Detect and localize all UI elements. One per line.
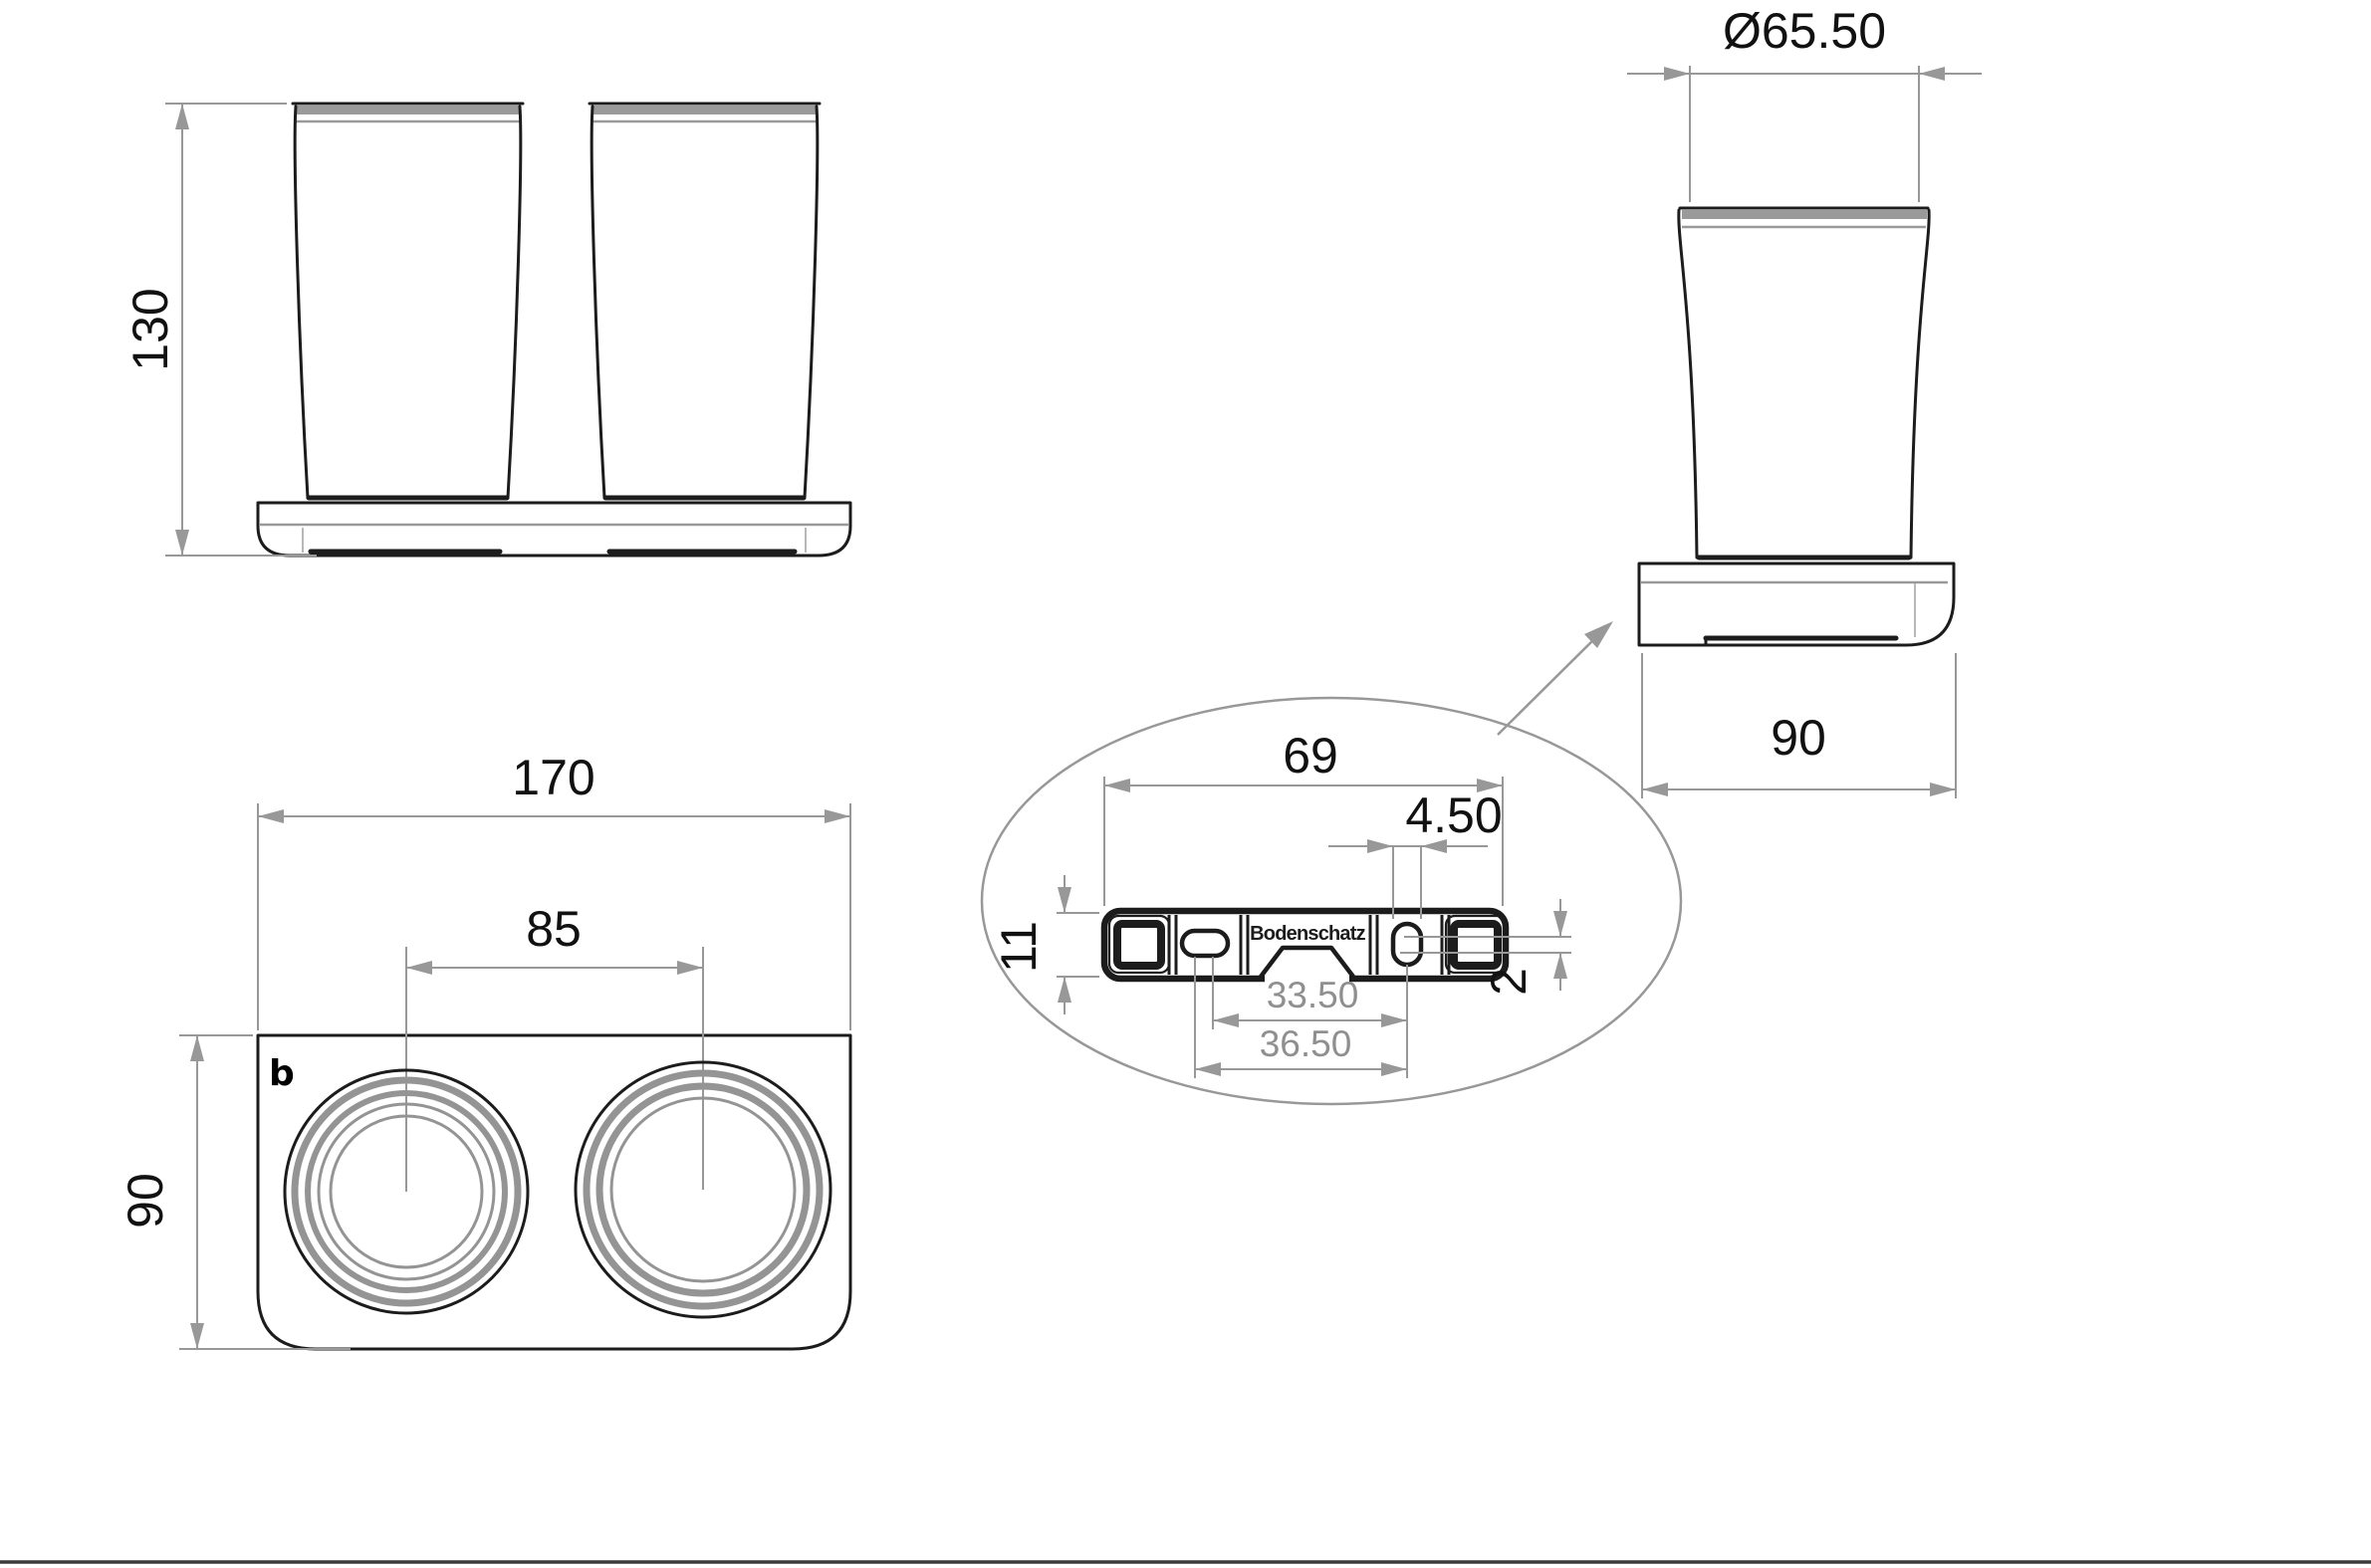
side-view: Ø65.50 xyxy=(1498,3,1982,798)
arrow-left-icon xyxy=(406,961,432,975)
dim-top-width: 170 xyxy=(258,750,850,1030)
side-holder xyxy=(1639,563,1954,645)
dim-top-depth-label: 90 xyxy=(118,1173,173,1229)
arrow-left-icon xyxy=(1213,1013,1239,1027)
tumbler-rim-band xyxy=(1682,210,1927,219)
arrow-down-icon xyxy=(1058,887,1071,913)
arrow-up-icon xyxy=(190,1035,204,1061)
arrow-left-icon xyxy=(1104,779,1130,792)
dim-cup-spacing-label: 85 xyxy=(526,901,582,957)
arrow-up-icon xyxy=(1553,953,1567,979)
arrow-up-icon xyxy=(1058,977,1071,1003)
arrow-up-icon xyxy=(175,104,189,129)
tumbler-side-left xyxy=(295,107,308,498)
dim-plate-height-label: 11 xyxy=(991,921,1047,973)
drawing-canvas: 130 Ø65.50 xyxy=(0,0,2371,1568)
arrow-left-icon xyxy=(1919,67,1945,81)
tumbler-side-right xyxy=(805,107,818,498)
dim-side-depth-label: 90 xyxy=(1771,710,1826,766)
tumbler-rim-band xyxy=(295,106,521,114)
tumbler-rim-band xyxy=(592,106,818,114)
dim-hole-distance-inner: 33.50 xyxy=(1213,975,1407,1027)
dim-cup-diameter-label: Ø65.50 xyxy=(1723,3,1886,59)
arrow-right-icon xyxy=(1367,839,1393,853)
dim-top-width-label: 170 xyxy=(512,750,594,805)
top-view: b 170 xyxy=(118,750,850,1349)
arrow-right-icon xyxy=(1664,67,1690,81)
side-tumbler xyxy=(1679,208,1929,558)
dim-hole-distance-inner-label: 33.50 xyxy=(1267,975,1359,1015)
detail-leader xyxy=(1498,621,1613,735)
tumbler-side-left xyxy=(1679,210,1697,558)
holder-outline xyxy=(258,503,850,556)
detail-view: Bodenschatz 69 4.50 xyxy=(982,698,1681,1104)
arrow-left-icon xyxy=(1642,783,1668,796)
dim-front-height-label: 130 xyxy=(122,288,178,370)
arrow-down-icon xyxy=(175,530,189,556)
dim-slot-width: 4.50 xyxy=(1328,787,1503,919)
technical-drawing-page: 130 Ø65.50 xyxy=(0,0,2371,1568)
front-holder xyxy=(258,503,850,556)
front-view: 130 xyxy=(122,104,850,556)
dim-top-depth: 90 xyxy=(118,1035,351,1349)
brand-logo: b xyxy=(269,1053,295,1094)
arrow-left-icon xyxy=(258,809,284,823)
dim-offset-label: 2 xyxy=(1481,968,1537,996)
tumbler-side-right xyxy=(1911,210,1929,558)
dim-slot-width-label: 4.50 xyxy=(1405,787,1502,843)
tumbler-side-left xyxy=(592,107,604,498)
dim-cup-diameter: Ø65.50 xyxy=(1627,3,1982,202)
arrow-right-icon xyxy=(677,961,703,975)
mounting-plate: Bodenschatz xyxy=(1104,911,1506,985)
front-tumbler-left xyxy=(293,104,523,498)
dim-hole-distance-outer: 36.50 xyxy=(1195,1023,1407,1076)
dim-plate-length-label: 69 xyxy=(1283,728,1338,784)
dim-plate-height: 11 xyxy=(991,875,1099,1014)
arrow-right-icon xyxy=(1381,1013,1407,1027)
arrow-right-icon xyxy=(825,809,850,823)
dim-front-height: 130 xyxy=(122,104,317,556)
arrow-right-icon xyxy=(1381,1062,1407,1076)
arrow-left-icon xyxy=(1195,1062,1221,1076)
dim-cup-spacing: 85 xyxy=(406,901,703,975)
arrow-right-icon xyxy=(1930,783,1956,796)
tumbler-side-right xyxy=(508,107,521,498)
plate-brand-label: Bodenschatz xyxy=(1250,923,1365,945)
front-tumbler-right xyxy=(590,104,820,498)
holder-outline xyxy=(1639,563,1954,645)
arrow-down-icon xyxy=(190,1323,204,1349)
arrow-down-icon xyxy=(1553,911,1567,937)
dim-hole-distance-outer-label: 36.50 xyxy=(1260,1023,1352,1064)
dim-side-depth: 90 xyxy=(1642,653,1956,798)
leader-line xyxy=(1498,633,1600,735)
